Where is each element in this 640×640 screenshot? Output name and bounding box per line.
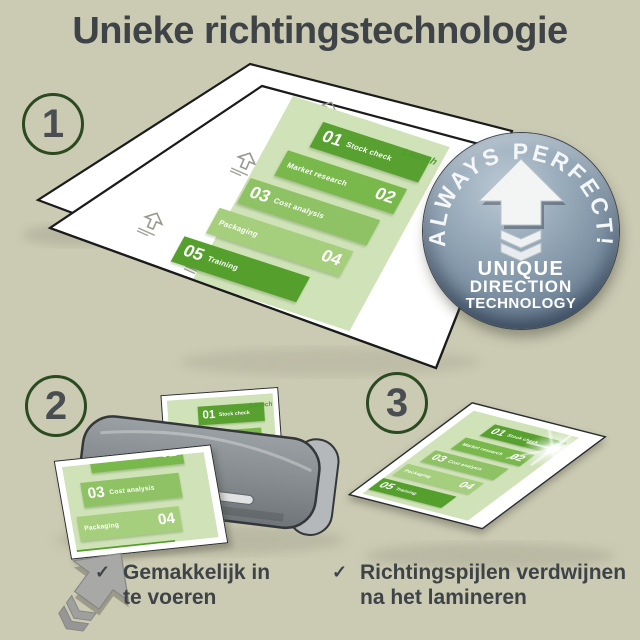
- step-1-number: 1: [22, 93, 84, 155]
- caption-arrows-disappear: ✓ Richtingspijlen verdwijnen na het lami…: [332, 560, 632, 610]
- badge-line-direction: DIRECTION: [470, 277, 573, 296]
- caption-line: Richtingspijlen verdwijnen: [360, 561, 626, 584]
- doc-bar-02: 02Market research: [88, 452, 185, 473]
- caption-easy-feed: ✓ Gemakkelijk in te voeren: [95, 560, 325, 610]
- badge-line-technology: TECHNOLOGY: [466, 295, 577, 312]
- caption-line: Gemakkelijk in: [123, 561, 270, 584]
- step-3-number: 3: [366, 372, 428, 434]
- infographic-canvas: Unieke richtingstechnologie Launch01Stoc…: [0, 0, 640, 640]
- caption-line: te voeren: [123, 586, 216, 609]
- check-icon: ✓: [332, 560, 356, 610]
- check-icon: ✓: [95, 560, 119, 610]
- doc-bar-03: 03Cost analysis: [80, 473, 183, 508]
- up-arrow-icon: [479, 159, 566, 261]
- always-perfect-badge: ALWAYS PERFECT! UNIQUE DIRECTION TECHNOL…: [423, 133, 619, 329]
- caption-line: na het lamineren: [360, 586, 527, 609]
